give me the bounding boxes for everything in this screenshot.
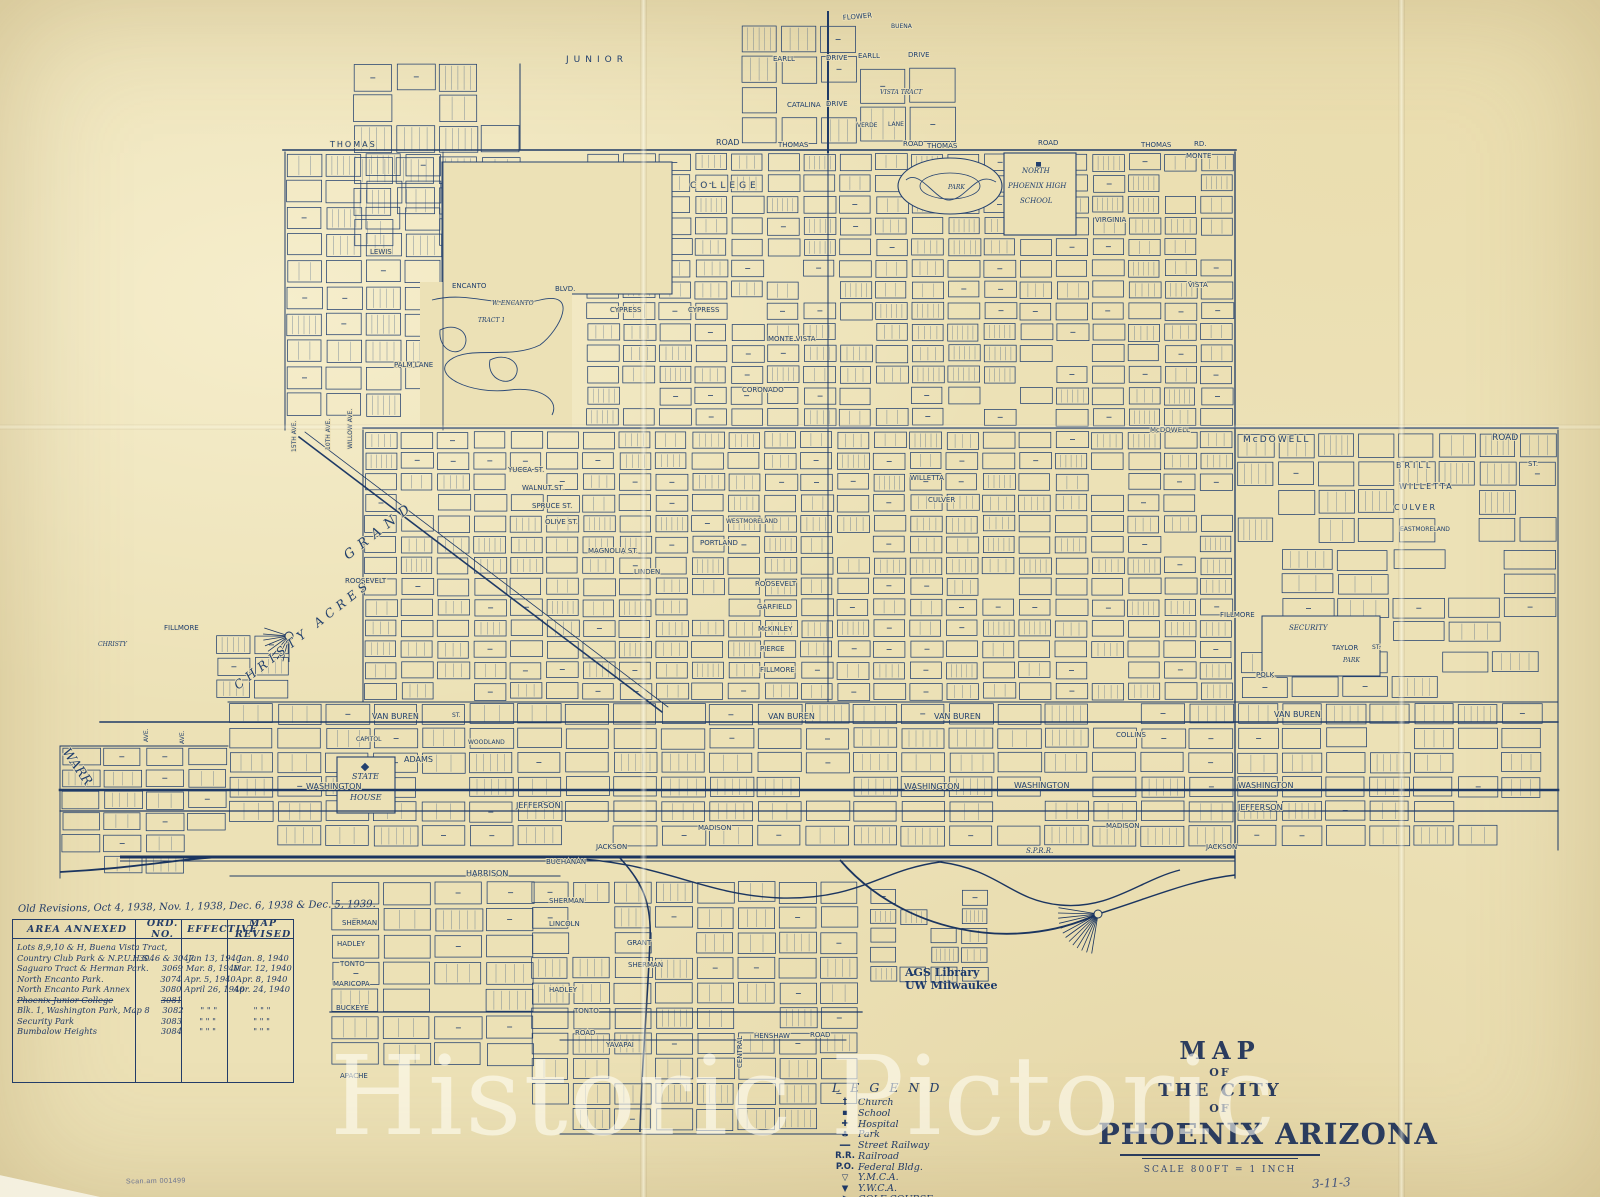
street-label: ROAD: [575, 1029, 595, 1037]
street-label: CYPRESS: [688, 306, 720, 314]
street-label: TONTO: [339, 960, 365, 968]
legend-item: ▼Y.W.C.A.: [832, 1183, 942, 1194]
street-label: VIRGINIA: [1095, 216, 1127, 224]
street-label: PARK: [1342, 657, 1360, 664]
street-label: EARLL: [773, 55, 795, 63]
street-label: DRIVE: [908, 51, 930, 59]
annex-cell: Saguaro Tract & Herman Park.: [13, 963, 139, 973]
annex-cell: Blk. 1, Washington Park, Map 8: [13, 1005, 139, 1015]
stamp-line: AGS Library: [905, 966, 998, 979]
legend-label: Church: [858, 1097, 894, 1108]
legend-item: R.R.Railroad: [832, 1151, 942, 1162]
street-label: ROAD: [810, 1031, 830, 1039]
annex-cell: " " ": [231, 1005, 293, 1015]
title-of: OF: [1098, 1102, 1342, 1115]
street-label: YAVAPAI: [605, 1041, 634, 1049]
annexation-table-panel: Old Revisions, Oct 4, 1938, Nov. 1, 1938…: [12, 902, 294, 1083]
street-label: SHERMAN: [549, 897, 584, 905]
annex-cell: Mar. 12, 1940: [232, 963, 293, 973]
annex-cell: Phoenix Junior College: [13, 995, 137, 1005]
street-label: LANE: [888, 121, 904, 128]
legend-label: Federal Bldg.: [858, 1162, 923, 1173]
title-the-city: THE CITY: [1098, 1080, 1342, 1101]
library-stamp: AGS Library UW Milwaukee: [905, 966, 998, 992]
table-divider: [135, 920, 136, 1082]
street-label: WARR: [59, 746, 95, 789]
street-label: JACKSON: [595, 843, 627, 851]
street-label: POLK: [1256, 671, 1275, 679]
street-label: THOMAS: [926, 142, 958, 150]
street-label: TAYLOR: [1331, 644, 1358, 652]
street-label: S.P.R.R.: [1026, 847, 1053, 855]
street-label: ROAD: [1038, 139, 1058, 147]
title-rule: [1142, 1158, 1298, 1159]
street-label: PARK: [947, 184, 965, 191]
street-label: MADISON: [1106, 822, 1139, 830]
street-label: WASHINGTON: [1238, 781, 1293, 790]
street-label: CULVER: [1394, 503, 1437, 512]
street-label: COLLEGE: [690, 181, 760, 191]
street-label: ST.: [1528, 460, 1538, 468]
title-block: MAP OF THE CITY OF PHOENIX ARIZONA SCALE…: [1098, 1036, 1342, 1175]
street-label: WILLOW AVE.: [347, 409, 354, 449]
street-label: ROAD: [716, 138, 739, 147]
annex-row: Phoenix Junior College3081: [13, 995, 293, 1006]
annex-cell: Lots 8,9,10 & H, Buena Vista Tract,: [13, 942, 139, 952]
annex-cell: April 26, 1940: [184, 984, 230, 994]
street-label: HARRISON: [466, 869, 508, 878]
annex-cell: 3069: [139, 963, 186, 973]
street-label: W. ENCANTO: [492, 300, 534, 307]
annex-cell: " " ": [185, 1016, 230, 1026]
street-label: JACKSON: [1205, 843, 1237, 851]
street-label: VAN BUREN: [934, 712, 981, 721]
street-label: BRILL: [1396, 461, 1433, 470]
street-label: SHERMAN: [628, 961, 663, 969]
street-label: CHRISTY ACRES: [231, 577, 374, 693]
street-label: SECURITY: [1289, 624, 1329, 632]
street-label: AVE.: [179, 730, 186, 744]
street-label: VISTA TRACT: [880, 89, 923, 96]
street-label: BUENA: [891, 23, 913, 30]
street-label: THOMAS: [1140, 141, 1172, 149]
annex-cell: " " ": [187, 1005, 232, 1015]
street-label: BUCKEYE: [336, 1004, 369, 1012]
table-header-row: AREA ANNEXED ORD. NO. EFFECTIVE MAP REVI…: [13, 920, 293, 939]
col-header-area: AREA ANNEXED: [13, 924, 141, 935]
school-icon: ▪: [832, 1108, 858, 1118]
annex-cell: Apr. 5, 1940: [184, 974, 230, 984]
street-label: ADAMS: [404, 755, 433, 764]
street-label: ENCANTO: [452, 282, 487, 290]
street-label: CAPITOL: [356, 736, 382, 743]
annex-row: Lots 8,9,10 & H, Buena Vista Tract,: [13, 942, 293, 953]
street-label: 15TH AVE.: [291, 421, 298, 452]
street-label: ST.: [1372, 644, 1381, 651]
annex-row: Security Park3083" " "" " ": [13, 1016, 293, 1027]
street-label: COLLINS: [1116, 731, 1146, 739]
ymca-icon: ▽: [832, 1173, 858, 1183]
street-label: LEWIS: [370, 248, 392, 256]
annex-cell: " " ": [185, 1026, 230, 1036]
street-label: HADLEY: [549, 986, 578, 994]
street-label: WILLETTA: [1399, 482, 1454, 491]
title-map: MAP: [1098, 1036, 1342, 1065]
annex-row: Blk. 1, Washington Park, Map 83082" " ""…: [13, 1005, 293, 1016]
street-label: CATALINA: [787, 101, 821, 109]
hospital-icon: ✚: [832, 1119, 858, 1129]
table-body: Lots 8,9,10 & H, Buena Vista Tract,Count…: [13, 942, 293, 1037]
annex-cell: 3074: [136, 974, 184, 984]
street-label: VAN BUREN: [768, 712, 815, 721]
street-label: SCHOOL: [1020, 197, 1053, 205]
railroad-icon: R.R.: [832, 1151, 858, 1161]
col-header-revised: MAP REVISED: [233, 918, 293, 940]
annex-cell: Apr. 8, 1940: [230, 974, 293, 984]
scale-note: SCALE 800FT = 1 INCH: [1098, 1165, 1342, 1175]
street-label: CYPRESS: [610, 306, 642, 314]
legend-label: Y.M.C.A.: [858, 1172, 899, 1183]
annex-cell: " " ": [230, 1016, 293, 1026]
legend-label: School: [858, 1108, 890, 1119]
street-label: FILLMORE: [760, 666, 795, 674]
street-label: GARFIELD: [757, 603, 792, 611]
street-label: THOMAS: [329, 140, 377, 149]
street-label: LINDEN: [634, 568, 660, 576]
annex-cell: " " ": [230, 1026, 293, 1036]
street-label: PALM LANE: [394, 361, 433, 369]
street-label: THOMAS: [777, 141, 809, 149]
title-rule: [1120, 1154, 1320, 1156]
street-label: WASHINGTON: [306, 782, 361, 791]
annex-cell: 3080: [136, 984, 184, 994]
street-label: EARLL: [858, 52, 880, 60]
street-label: JUNIOR: [565, 55, 628, 65]
street-label: ROOSEVELT: [755, 580, 797, 588]
title-city-name: PHOENIX ARIZONA: [1098, 1117, 1342, 1151]
street-label: HOUSE: [349, 793, 382, 802]
street-label: WOODLAND: [468, 739, 505, 746]
street-label: MARICOPA: [333, 980, 370, 988]
legend-items: †Church▪School✚Hospital♣Park━━Street Rai…: [832, 1097, 942, 1197]
map-legend: L E G E N D †Church▪School✚Hospital♣Park…: [832, 1080, 942, 1197]
annex-cell: 3081: [137, 995, 185, 1005]
street-label: CORONADO: [742, 386, 784, 394]
street-label: DRIVE: [826, 100, 848, 108]
annex-cell: Apr. 24, 1940: [230, 984, 293, 994]
street-label: BLVD.: [555, 285, 575, 293]
street-label: McKINLEY: [758, 625, 793, 633]
street-label: FILLMORE: [1220, 611, 1255, 619]
street-label: DRIVE: [826, 54, 848, 62]
street-label: STATE: [352, 772, 379, 781]
paper-corner: [0, 1173, 110, 1197]
stamp-line: UW Milwaukee: [905, 979, 998, 992]
annex-row: North Encanto Park.3074Apr. 5, 1940Apr. …: [13, 974, 293, 985]
revisions-note: Old Revisions, Oct 4, 1938, Nov. 1, 1938…: [18, 900, 294, 915]
street-label: MONTE VISTA: [768, 335, 816, 343]
street-label: ROAD: [1492, 433, 1518, 443]
street-label: YUCCA ST.: [507, 466, 544, 474]
street-label: NORTH: [1021, 167, 1051, 175]
legend-item: P.O.Federal Bldg.: [832, 1162, 942, 1173]
annex-cell: North Encanto Park.: [13, 974, 136, 984]
corner-note: 3-11-3: [1312, 1175, 1351, 1191]
annex-row: Bumbalow Heights3084" " "" " ": [13, 1026, 293, 1037]
street-label: APACHE: [340, 1072, 368, 1080]
street-label: RD.: [1194, 140, 1206, 148]
federal-bldg-icon: P.O.: [832, 1162, 858, 1172]
landmarks: [337, 153, 1380, 813]
street-label: LINCOLN: [549, 920, 580, 928]
park-icon: ♣: [832, 1130, 858, 1140]
table-divider: [181, 920, 182, 1082]
street-label: McDOWELL: [1150, 426, 1190, 434]
street-label: MAGNOLIA ST.: [588, 547, 638, 555]
street-label: JEFFERSON: [1237, 803, 1283, 812]
annex-cell: 3084: [137, 1026, 185, 1036]
street-label: PIERCE: [760, 645, 785, 653]
title-of: OF: [1098, 1066, 1342, 1079]
street-railway-icon: ━━: [832, 1141, 858, 1151]
annex-row: Country Club Park & N.P.U.H.S.3046 & 304…: [13, 953, 293, 964]
street-label: WASHINGTON: [904, 782, 959, 791]
street-label: HADLEY: [337, 940, 366, 948]
legend-label: Railroad: [858, 1151, 899, 1162]
street-label: WASHINGTON: [1014, 781, 1069, 790]
scan-note: Scan.am 001499: [126, 1177, 186, 1185]
street-label: AVE.: [143, 728, 150, 742]
legend-label: Street Railway: [858, 1140, 929, 1151]
street-label: GRAND: [341, 498, 418, 563]
street-label: MONTE: [1186, 152, 1211, 160]
street-label: VERDE: [857, 122, 878, 129]
street-label: PHOENIX HIGH: [1007, 182, 1067, 190]
annex-cell: Bumbalow Heights: [13, 1026, 137, 1036]
annex-cell: Jan. 8, 1940: [234, 953, 293, 963]
street-label: EASTMORELAND: [1400, 526, 1450, 533]
annex-cell: Security Park: [13, 1016, 137, 1026]
legend-item: ♣Park: [832, 1129, 942, 1140]
street-label: GRANT: [627, 939, 652, 947]
legend-title: L E G E N D: [832, 1080, 942, 1095]
street-label: TRACT 1: [478, 317, 505, 324]
legend-item: ━━Street Railway: [832, 1140, 942, 1151]
annex-cell: 3082: [139, 1005, 187, 1015]
street-label: VISTA: [1188, 281, 1208, 289]
annex-cell: Country Club Park & N.P.U.H.S.: [13, 953, 139, 963]
street-label: WALNUT ST.: [522, 484, 564, 492]
street-label: SHERMAN: [342, 919, 377, 927]
street-label: CENTRAL: [736, 1036, 744, 1068]
street-label: WILLETTA: [910, 474, 944, 482]
street-label: SPRUCE ST.: [532, 502, 572, 510]
legend-item: ✚Hospital: [832, 1119, 942, 1130]
annex-row: North Encanto Park Annex3080April 26, 19…: [13, 984, 293, 995]
annex-cell: 3083: [137, 1016, 185, 1026]
street-label: WESTMORELAND: [726, 518, 778, 525]
table-divider: [227, 920, 228, 1082]
annexation-table: AREA ANNEXED ORD. NO. EFFECTIVE MAP REVI…: [12, 919, 294, 1083]
legend-label: Hospital: [858, 1119, 899, 1130]
park-square: [442, 162, 672, 294]
street-label: JEFFERSON: [515, 801, 561, 810]
street-label: McDOWELL: [1243, 435, 1310, 445]
legend-item: †Church: [832, 1097, 942, 1108]
ywca-icon: ▼: [832, 1184, 858, 1194]
street-label: FLOWER: [842, 11, 872, 22]
legend-item: ▪School: [832, 1108, 942, 1119]
street-label: VAN BUREN: [372, 712, 419, 721]
street-label: PORTLAND: [700, 539, 738, 547]
legend-label: Park: [858, 1129, 880, 1140]
map-sheet: JUNIORCOLLEGETHOMASROADTHOMASROADTHOMASR…: [0, 0, 1600, 1197]
street-label: CHRISTY: [98, 641, 128, 648]
street-label: ST.: [452, 712, 461, 719]
street-label: ROAD: [903, 140, 923, 148]
annex-row: Saguaro Tract & Herman Park.3069Mar. 8, …: [13, 963, 293, 974]
annex-cell: North Encanto Park Annex: [13, 984, 136, 994]
annex-cell: Mar. 8, 1940: [186, 963, 232, 973]
street-label: 10TH AVE.: [325, 419, 332, 450]
church-icon: †: [832, 1097, 858, 1107]
street-label: HENSHAW: [754, 1032, 790, 1040]
legend-item: ▽Y.M.C.A.: [832, 1173, 942, 1184]
street-label: TONTO: [573, 1007, 599, 1015]
street-label: FILLMORE: [164, 624, 199, 632]
street-label: OLIVE ST.: [545, 518, 578, 526]
street-label: MADISON: [698, 824, 731, 832]
street-label: CULVER: [928, 496, 955, 504]
legend-label: Y.W.C.A.: [858, 1183, 897, 1194]
street-label: BUCHANAN: [546, 858, 586, 866]
street-label: VAN BUREN: [1274, 710, 1321, 719]
